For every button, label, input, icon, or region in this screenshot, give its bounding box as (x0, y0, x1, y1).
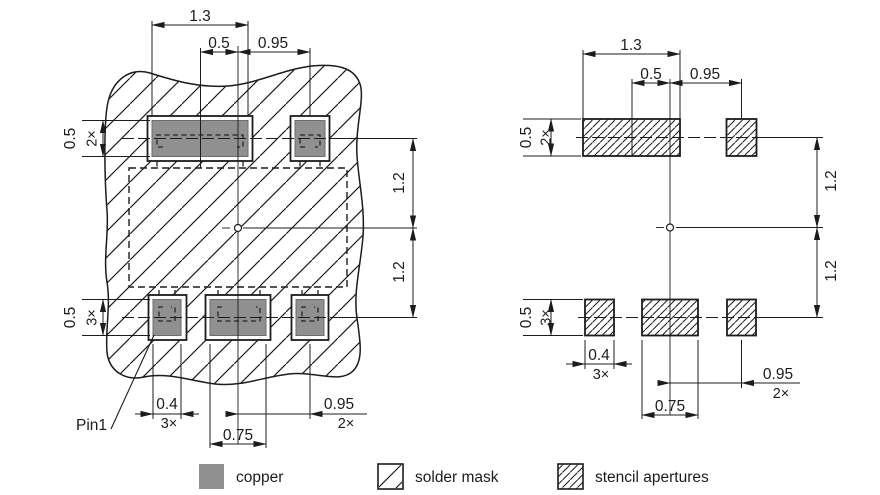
dim-label-right-right-offset-bottom: 0.95 (763, 366, 793, 383)
dim-label-right-right-offset: 0.95 (690, 66, 720, 83)
center-mark-stencil (667, 224, 674, 231)
dim-label-right-pad-height-bottom: 0.5 (518, 307, 535, 329)
dim-label-left-center-pad-width: 0.75 (223, 427, 253, 444)
dim-label-right-vertical-lower: 1.2 (823, 260, 840, 282)
dim-label-left-pad-width-bottom: 0.4 (156, 396, 178, 413)
dim-label-right-pad-height-top: 0.5 (518, 127, 535, 149)
dim-label-right-pad-width-bottom: 0.4 (588, 347, 610, 364)
dim-label-left-top-width: 1.3 (189, 8, 211, 25)
stencil-view: 1.3 0.5 0.95 0.5 2× 1.2 1.2 (518, 37, 840, 419)
dim-count-right-pad-width-bottom: 3× (593, 367, 610, 383)
legend: copper solder mask stencil apertures (199, 464, 709, 489)
land-pattern-view: 1.3 0.5 0.95 0.5 2× 1.2 1.2 (62, 8, 417, 448)
drawing-svg: 1.3 0.5 0.95 0.5 2× 1.2 1.2 (0, 0, 880, 495)
legend-stencil-swatch (558, 464, 583, 489)
dim-label-right-top-width: 1.3 (620, 37, 642, 54)
dim-count-left-pad-height-top: 2× (85, 130, 101, 147)
center-mark (235, 225, 242, 232)
legend-copper-swatch (199, 464, 224, 489)
legend-solder-mask-swatch (378, 464, 403, 489)
dim-count-right-pad-height-top: 2× (539, 129, 555, 146)
dim-count-right-pad-height-bottom: 3× (539, 309, 555, 326)
dim-label-left-pad-height-top: 0.5 (62, 128, 79, 150)
dim-label-left-vertical-upper: 1.2 (391, 172, 408, 194)
dim-label-left-right-offset: 0.95 (258, 35, 288, 52)
dim-label-left-pad-height-bottom: 0.5 (62, 307, 79, 329)
dim-count-right-right-offset-bottom: 2× (773, 386, 790, 402)
dim-count-left-pad-width-bottom: 3× (161, 416, 178, 432)
legend-solder-mask-label: solder mask (415, 469, 499, 486)
dim-label-left-center-offset: 0.5 (208, 35, 230, 52)
dim-label-right-vertical-upper: 1.2 (823, 170, 840, 192)
legend-stencil-label: stencil apertures (595, 469, 709, 486)
dim-count-left-right-offset-bottom: 2× (338, 416, 355, 432)
legend-copper-label: copper (236, 469, 283, 486)
dim-label-right-center-offset: 0.5 (640, 66, 662, 83)
dim-label-right-center-pad-width: 0.75 (655, 398, 685, 415)
pin1-label: Pin1 (76, 417, 107, 434)
dim-label-left-right-offset-bottom: 0.95 (324, 396, 354, 413)
dim-count-left-pad-height-bottom: 3× (85, 309, 101, 326)
dim-label-left-vertical-lower: 1.2 (391, 261, 408, 283)
footprint-drawing: 1.3 0.5 0.95 0.5 2× 1.2 1.2 (0, 0, 880, 495)
